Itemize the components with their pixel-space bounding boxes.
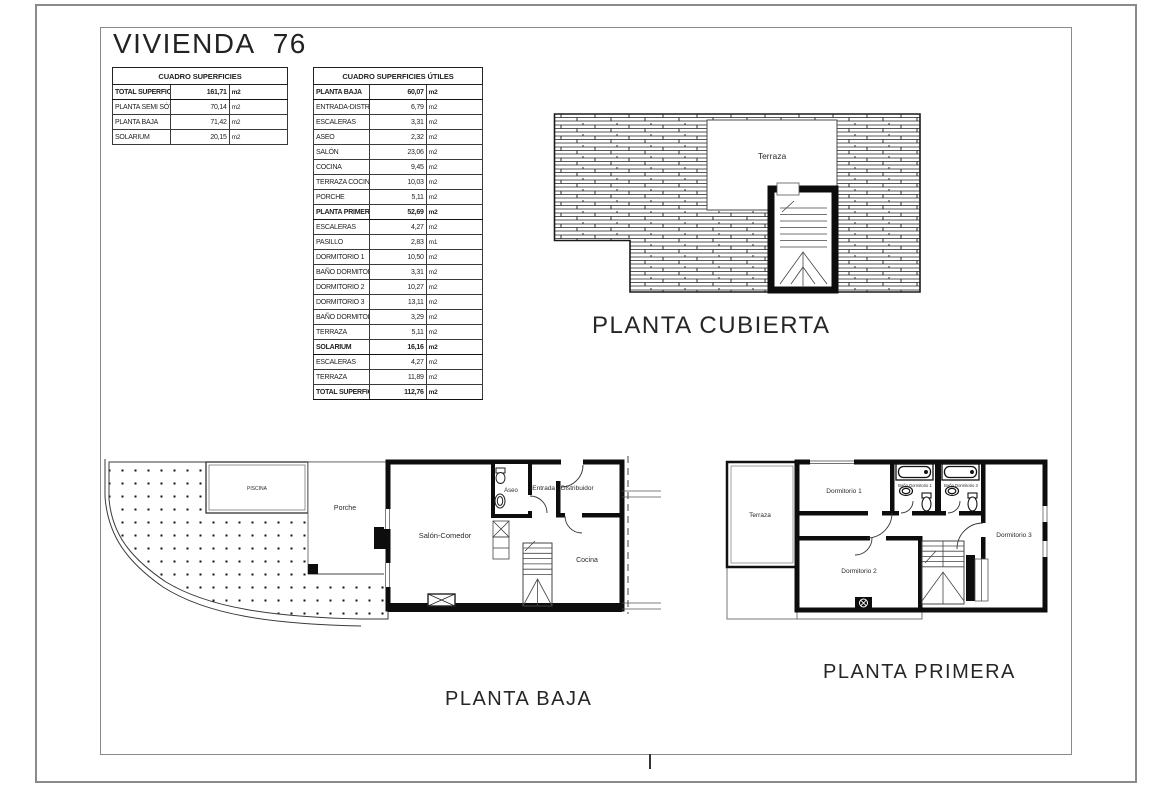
table-cell-unit: m2 xyxy=(426,85,482,100)
room-label-bano1: Baño Dormitorio 1 xyxy=(898,483,932,488)
table-cell-unit: m2 xyxy=(426,190,482,205)
table-cell-unit: m2 xyxy=(229,130,287,145)
table-cell-label: BAÑO DORMITORIO 3 xyxy=(314,310,370,325)
table-row: PORCHE5,11m2 xyxy=(314,190,483,205)
table-row: SOLARIUM20,15m2 xyxy=(113,130,288,145)
table-cell-value: 71,42 xyxy=(171,115,229,130)
table-cell-label: PLANTA PRIMERA xyxy=(314,205,370,220)
room-label-dorm1: Dormitorio 1 xyxy=(826,488,862,495)
table-cell-label: ESCALERAS xyxy=(314,355,370,370)
table-row: TERRAZA11,89m2 xyxy=(314,370,483,385)
table-body: PLANTA BAJA60,07m2ENTRADA-DISTRIBUIDOR6,… xyxy=(314,85,483,400)
terraza: Terraza xyxy=(727,462,797,567)
table-row: TOTAL SUPERFICIE ÚTIL112,76m2 xyxy=(314,385,483,400)
table-cell-value: 10,50 xyxy=(370,250,426,265)
table-cell-unit: m2 xyxy=(426,115,482,130)
table-cell-unit: m2 xyxy=(426,310,482,325)
drain-marker-icon xyxy=(855,597,872,609)
table-row: COCINA9,45m2 xyxy=(314,160,483,175)
porche-column xyxy=(308,564,318,574)
planta-cubierta-drawing: Terraza xyxy=(553,112,923,297)
table-row: PLANTA PRIMERA52,69m2 xyxy=(314,205,483,220)
table-row: PLANTA BAJA71,42m2 xyxy=(113,115,288,130)
room-label-entrada: Entrada - Distribuidor xyxy=(532,485,594,492)
table-body: TOTAL SUPERFICIE CONSTRUIDA161,71m2PLANT… xyxy=(113,85,288,145)
room-label-porche: Porche xyxy=(334,505,356,512)
table-cell-label: TERRAZA COCINA xyxy=(314,175,370,190)
table-cell-unit: m2 xyxy=(426,130,482,145)
table-cell-unit: m2 xyxy=(229,115,287,130)
table-cell-unit: m2 xyxy=(426,385,482,400)
table-cell-unit: m2 xyxy=(426,175,482,190)
porche: Porche xyxy=(308,462,391,583)
room-label-terraza: Terraza xyxy=(749,512,771,519)
table-cell-unit: m2 xyxy=(426,325,482,340)
table-cell-label: TOTAL SUPERFICIE ÚTIL xyxy=(314,385,370,400)
table-row: TOTAL SUPERFICIE CONSTRUIDA161,71m2 xyxy=(113,85,288,100)
table-header: CUADRO SUPERFICIES ÚTILES xyxy=(314,68,483,85)
window-icon xyxy=(810,460,854,465)
table-cell-label: TERRAZA xyxy=(314,370,370,385)
table-cell-label: DORMITORIO 2 xyxy=(314,280,370,295)
toilet-icon xyxy=(496,468,505,484)
closet xyxy=(975,559,988,601)
table-row: ESCALERAS4,27m2 xyxy=(314,220,483,235)
table-cell-label: ESCALERAS xyxy=(314,220,370,235)
room-label-dorm3: Dormitorio 3 xyxy=(996,532,1032,539)
table-cell-value: 3,29 xyxy=(370,310,426,325)
table-cell-label: TERRAZA xyxy=(314,325,370,340)
table-cell-label: ENTRADA-DISTRIBUIDOR xyxy=(314,100,370,115)
table-cell-unit: m2 xyxy=(426,160,482,175)
table-cell-label: PLANTA BAJA xyxy=(314,85,370,100)
table-cuadro-superficies-utiles: CUADRO SUPERFICIES ÚTILES PLANTA BAJA60,… xyxy=(313,67,483,400)
table-cell-label: PLANTA SEMI SÓTANO xyxy=(113,100,171,115)
planta-baja-drawing: PISCINA Porche xyxy=(103,451,663,631)
table-row: DORMITORIO 110,50m2 xyxy=(314,250,483,265)
table-row: TERRAZA COCINA10,03m2 xyxy=(314,175,483,190)
table-cuadro-superficies: CUADRO SUPERFICIES TOTAL SUPERFICIE CONS… xyxy=(112,67,288,145)
table-cell-label: SOLARIUM xyxy=(113,130,171,145)
hearth xyxy=(428,594,455,606)
table-cell-label: ASEO xyxy=(314,130,370,145)
table-row: DORMITORIO 210,27m2 xyxy=(314,280,483,295)
room-label-bano3: Baño Dormitorio 3 xyxy=(944,483,978,488)
table-cell-value: 3,31 xyxy=(370,265,426,280)
table-cell-value: 2,83 xyxy=(370,235,426,250)
table-cell-label: PASILLO xyxy=(314,235,370,250)
table-cell-label: PLANTA BAJA xyxy=(113,115,171,130)
planta-primera-title: PLANTA PRIMERA xyxy=(823,661,1016,684)
table-cell-label: BAÑO DORMITORIO 1 xyxy=(314,265,370,280)
table-row: PLANTA SEMI SÓTANO70,14m2 xyxy=(113,100,288,115)
table-cell-value: 13,11 xyxy=(370,295,426,310)
table-header: CUADRO SUPERFICIES xyxy=(113,68,288,85)
front-door-gap xyxy=(561,458,583,467)
table-cell-label: DORMITORIO 1 xyxy=(314,250,370,265)
table-cell-unit: m2 xyxy=(229,85,287,100)
sink-icon xyxy=(495,494,505,508)
table-cell-label: SALÓN xyxy=(314,145,370,160)
table-cell-value: 23,06 xyxy=(370,145,426,160)
plan-sheet: VIVIENDA 76 CUADRO SUPERFICIES TOTAL SUP… xyxy=(0,0,1170,785)
table-cell-value: 9,45 xyxy=(370,160,426,175)
table-cell-label: ESCALERAS xyxy=(314,115,370,130)
table-row: BAÑO DORMITORIO 13,31m2 xyxy=(314,265,483,280)
table-row: PLANTA BAJA60,07m2 xyxy=(314,85,483,100)
table-row: ASEO2,32m2 xyxy=(314,130,483,145)
table-cell-value: 70,14 xyxy=(171,100,229,115)
room-label-piscina: PISCINA xyxy=(247,486,268,492)
table-cell-label: SOLARIUM xyxy=(314,340,370,355)
room-label-aseo: Aseo xyxy=(504,488,518,494)
table-row: PASILLO2,83m1 xyxy=(314,235,483,250)
table-row: SOLARIUM16,16m2 xyxy=(314,340,483,355)
table-row: BAÑO DORMITORIO 33,29m2 xyxy=(314,310,483,325)
table-cell-unit: m2 xyxy=(426,265,482,280)
table-cell-value: 10,27 xyxy=(370,280,426,295)
table-cell-unit: m2 xyxy=(426,220,482,235)
table-cell-label: TOTAL SUPERFICIE CONSTRUIDA xyxy=(113,85,171,100)
table-cell-value: 112,76 xyxy=(370,385,426,400)
planta-baja-title: PLANTA BAJA xyxy=(445,688,592,711)
table-row: ESCALERAS3,31m2 xyxy=(314,115,483,130)
table-cell-value: 161,71 xyxy=(171,85,229,100)
table-cell-value: 4,27 xyxy=(370,355,426,370)
toilet-icon xyxy=(922,493,931,511)
table-cell-value: 10,03 xyxy=(370,175,426,190)
roof-stairwell xyxy=(771,183,835,290)
table-cell-unit: m2 xyxy=(426,145,482,160)
room-label-dorm2: Dormitorio 2 xyxy=(841,568,877,575)
table-cell-value: 3,31 xyxy=(370,115,426,130)
table-cell-value: 5,11 xyxy=(370,325,426,340)
planta-cubierta-title: PLANTA CUBIERTA xyxy=(592,312,831,340)
table-cell-label: DORMITORIO 3 xyxy=(314,295,370,310)
table-cell-value: 2,32 xyxy=(370,130,426,145)
table-cell-unit: m2 xyxy=(426,250,482,265)
table-cell-value: 5,11 xyxy=(370,190,426,205)
table-cell-unit: m2 xyxy=(426,340,482,355)
table-cell-value: 11,89 xyxy=(370,370,426,385)
room-label-salon: Salón-Comedor xyxy=(419,531,472,540)
sheet-center-tick xyxy=(649,754,651,769)
table-row: TERRAZA5,11m2 xyxy=(314,325,483,340)
house-walls xyxy=(374,458,622,612)
room-label-cocina: Cocina xyxy=(576,557,598,564)
bathtub-icon xyxy=(942,464,979,480)
planta-primera-drawing: Terraza xyxy=(722,451,1057,651)
table-cell-label: PORCHE xyxy=(314,190,370,205)
table-cell-unit: m2 xyxy=(426,205,482,220)
table-cell-unit: m1 xyxy=(426,235,482,250)
table-cell-value: 4,27 xyxy=(370,220,426,235)
table-cell-unit: m2 xyxy=(426,100,482,115)
table-cell-value: 20,15 xyxy=(171,130,229,145)
table-row: DORMITORIO 313,11m2 xyxy=(314,295,483,310)
page-title: VIVIENDA 76 xyxy=(113,28,307,60)
table-row: ESCALERAS4,27m2 xyxy=(314,355,483,370)
table-cell-unit: m2 xyxy=(426,370,482,385)
room-label-terraza: Terraza xyxy=(758,151,787,161)
table-cell-value: 16,16 xyxy=(370,340,426,355)
table-cell-label: COCINA xyxy=(314,160,370,175)
table-cell-unit: m2 xyxy=(229,100,287,115)
table-cell-unit: m2 xyxy=(426,295,482,310)
bathtub-icon xyxy=(896,464,933,480)
table-row: ENTRADA-DISTRIBUIDOR6,79m2 xyxy=(314,100,483,115)
piscina: PISCINA xyxy=(206,462,308,513)
table-row: SALÓN23,06m2 xyxy=(314,145,483,160)
table-cell-unit: m2 xyxy=(426,280,482,295)
table-cell-value: 52,69 xyxy=(370,205,426,220)
toilet-icon xyxy=(968,493,977,511)
table-cell-unit: m2 xyxy=(426,355,482,370)
table-cell-value: 6,79 xyxy=(370,100,426,115)
table-cell-value: 60,07 xyxy=(370,85,426,100)
